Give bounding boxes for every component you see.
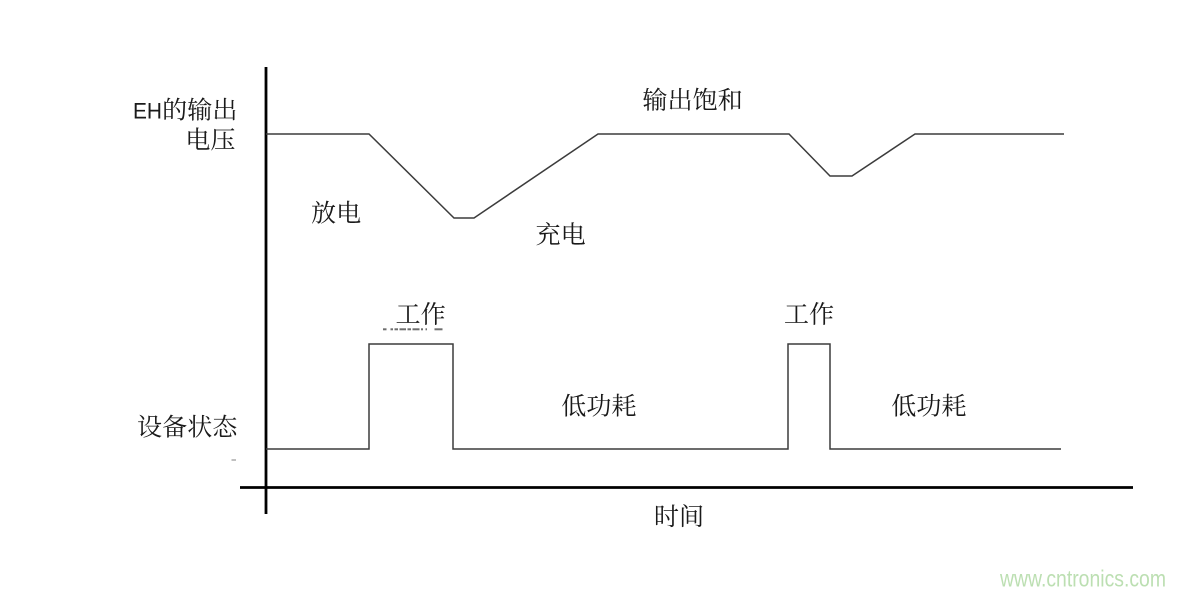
svg-text:EH: EH — [133, 98, 162, 123]
svg-text:www.cntronics.com: www.cntronics.com — [999, 566, 1166, 592]
